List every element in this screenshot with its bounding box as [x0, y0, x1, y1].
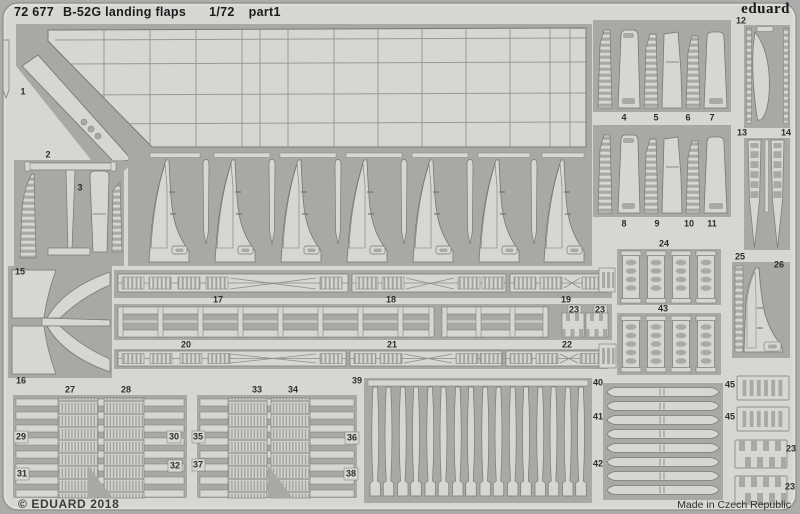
part-number-label: 34	[288, 386, 298, 395]
corrugated-part-39	[364, 378, 592, 503]
part-number-label: 27	[65, 386, 75, 395]
part-number-label: 39	[352, 377, 362, 386]
part-number-label: 37	[193, 461, 203, 470]
brand-logo: eduard	[741, 1, 790, 18]
part-number-label: 21	[387, 341, 397, 350]
part-number-label: 38	[346, 470, 356, 479]
parts-2-3-box	[14, 160, 124, 266]
pe-sheet-graphic	[0, 0, 800, 514]
sheet-title: B-52G landing flaps	[63, 5, 186, 19]
part-number-label: 5	[653, 114, 658, 123]
part-number-label: 33	[252, 386, 262, 395]
origin-text: Made in Czech Republic	[677, 499, 791, 511]
slat-parts-40-42	[603, 383, 723, 500]
strip-row-20-22	[114, 349, 608, 369]
part-number-label: 20	[181, 341, 191, 350]
part-number-label: 41	[593, 413, 603, 422]
part-number-label: 32	[170, 462, 180, 471]
part-number-label: 14	[781, 129, 791, 138]
rib-group-4-7	[593, 20, 731, 112]
block-33-38	[192, 395, 359, 498]
part-number-label: 3	[77, 184, 82, 193]
sheet-part: part1	[249, 5, 281, 19]
strip-row-17-19	[114, 270, 612, 298]
parts-13-14-box	[744, 138, 790, 250]
part-number-label: 12	[736, 17, 746, 26]
part-number-label: 29	[16, 433, 26, 442]
hinge-part-23	[586, 313, 608, 337]
part-number-label: 30	[169, 433, 179, 442]
part-number-label: 43	[658, 305, 668, 314]
photo-of-pe-fret: 72 677 B-52G landing flaps 1/72 part1 ed…	[0, 0, 800, 514]
part-number-label: 23	[785, 483, 795, 492]
part-number-label: 23	[569, 306, 579, 315]
copyright-text: © EDUARD 2018	[18, 497, 119, 511]
part-number-label: 8	[621, 220, 626, 229]
part-number-label: 35	[193, 433, 203, 442]
fairing-parts-15-16	[8, 266, 112, 378]
part-number-label: 17	[213, 296, 223, 305]
edge-strip	[3, 40, 9, 98]
part-number-label: 36	[347, 434, 357, 443]
grid-part-43	[617, 313, 721, 375]
block-27-32	[13, 395, 187, 498]
rib-group-8-11	[593, 125, 731, 217]
part-number-label: 18	[386, 296, 396, 305]
hinge-part-23	[562, 313, 584, 337]
part-number-label: 15	[15, 268, 25, 277]
part-number-label: 13	[737, 129, 747, 138]
parts-25-26-box	[732, 262, 790, 358]
part-number-label: 19	[561, 296, 571, 305]
part-number-label: 24	[659, 240, 669, 249]
ladder-frame-20-21	[114, 304, 612, 340]
part-number-label: 28	[121, 386, 131, 395]
part-number-label: 42	[593, 460, 603, 469]
part-number-label: 6	[685, 114, 690, 123]
sheet-header: 72 677 B-52G landing flaps 1/72 part1	[14, 5, 281, 19]
part-number-label: 16	[16, 377, 26, 386]
part-number-label: 11	[707, 220, 717, 229]
part-number-label: 45	[725, 413, 735, 422]
part-number-label: 7	[709, 114, 714, 123]
part-number-label: 1	[20, 88, 25, 97]
part-number-label: 2	[45, 151, 50, 160]
mid-rib-row	[128, 152, 592, 266]
part-number-label: 9	[654, 220, 659, 229]
part-number-label: 45	[725, 381, 735, 390]
part-12-box	[744, 25, 790, 128]
part-number-label: 23	[786, 445, 796, 454]
part-number-label: 40	[593, 379, 603, 388]
part-number-label: 22	[562, 341, 572, 350]
part-number-label: 31	[17, 470, 27, 479]
grid-part-24	[617, 249, 721, 305]
part-number-label: 4	[621, 114, 626, 123]
part-number-label: 25	[735, 253, 745, 262]
sheet-scale: 1/72	[209, 5, 235, 19]
catalog-number: 72 677	[14, 5, 54, 19]
part-number-label: 26	[774, 261, 784, 270]
part-number-label: 10	[684, 220, 694, 229]
part-number-label: 23	[595, 306, 605, 315]
